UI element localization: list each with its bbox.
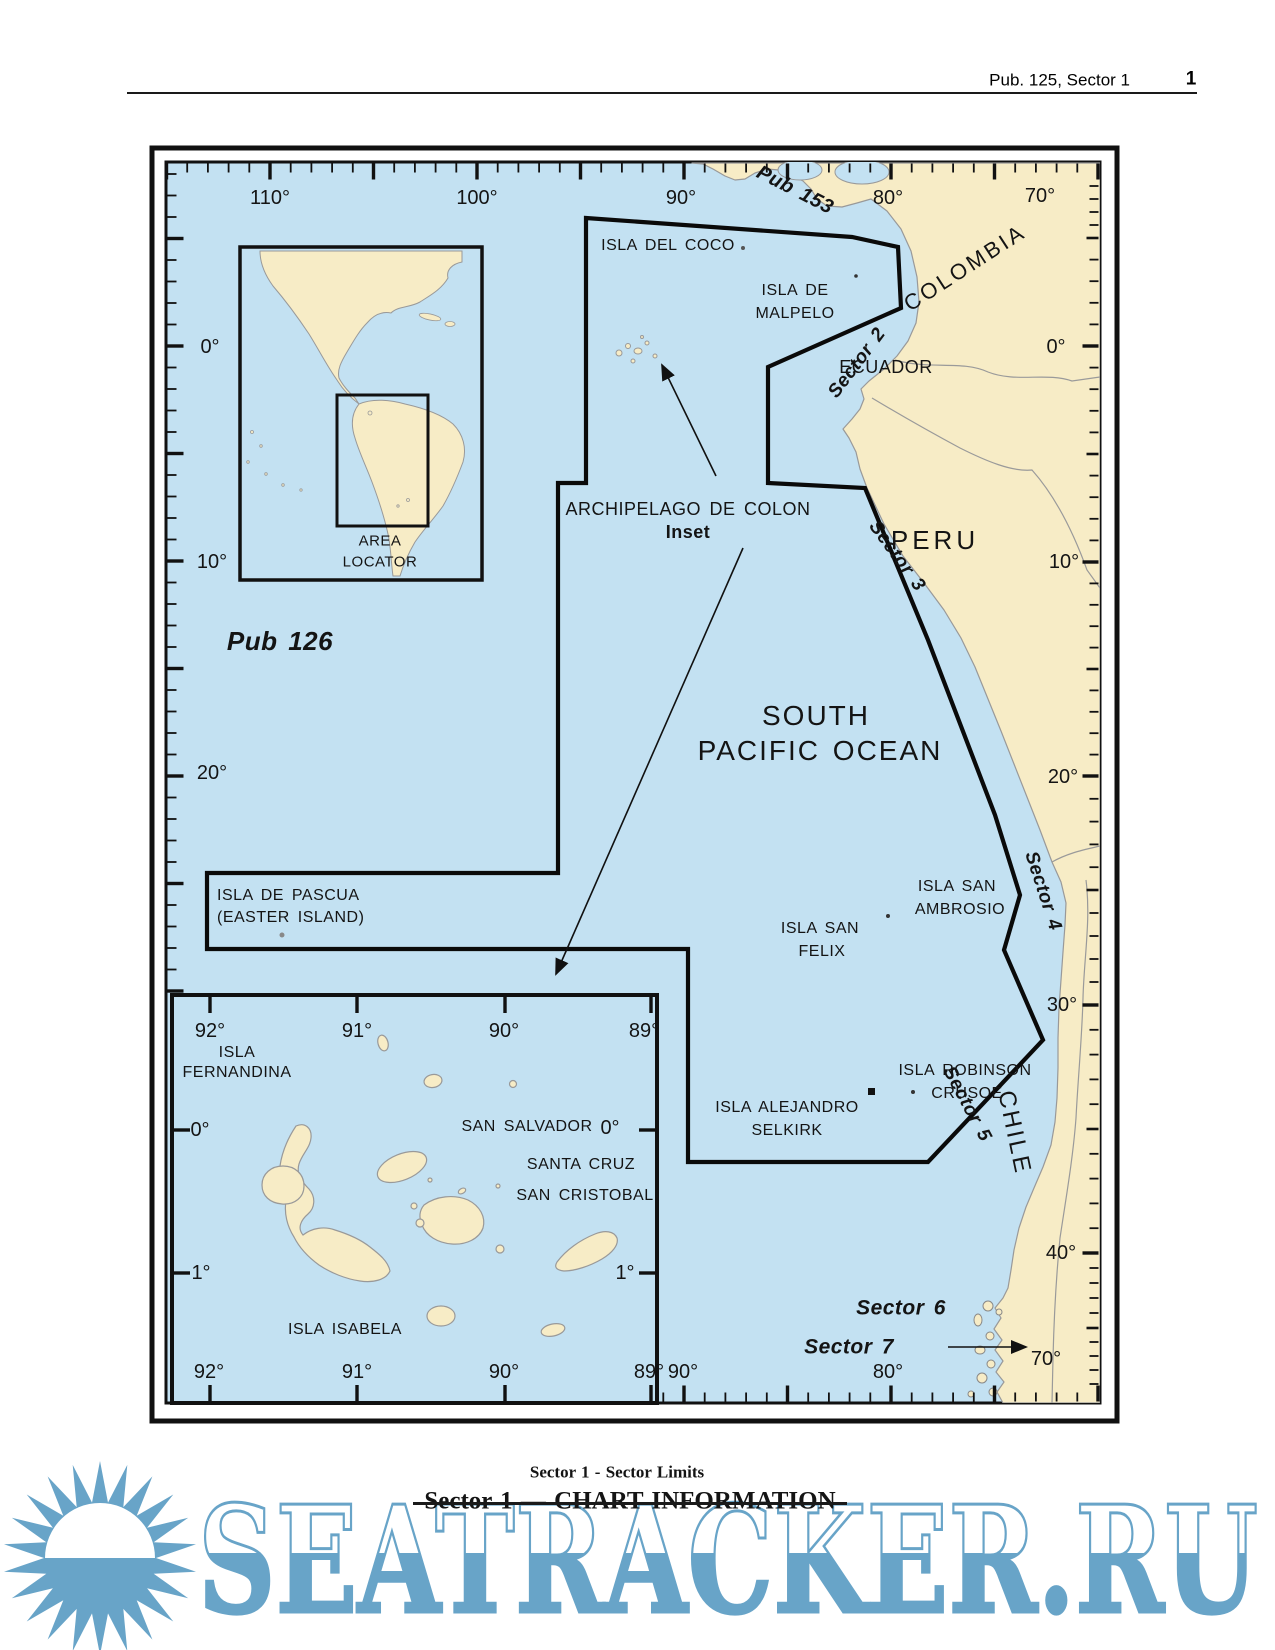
tick-label-10-left: 10° (197, 552, 227, 572)
isla-malpelo-label-1: ISLA DE (762, 283, 829, 299)
san-salvador-label: SAN SALVADOR (461, 1119, 592, 1135)
isla-malpelo-label-2: MALPELO (755, 306, 834, 322)
san-felix-label-2: FELIX (799, 944, 846, 960)
inset-tick-92-top: 92° (195, 1021, 225, 1041)
header-rule (127, 92, 1197, 94)
isla-malpelo-dot (854, 274, 858, 278)
inset-tick-91-top: 91° (342, 1021, 372, 1041)
inset-tick-1-right: 1° (615, 1263, 634, 1283)
isla-isabela-label: ISLA ISABELA (288, 1322, 402, 1338)
tick-label-100w: 100° (456, 188, 497, 208)
alejandro-selkirk-label-1: ISLA ALEJANDRO (715, 1100, 858, 1116)
tick-label-0-left: 0° (200, 337, 219, 357)
sector-7-label: Sector 7 (804, 1337, 894, 1358)
tick-label-20-left: 20° (197, 763, 227, 783)
inset-tick-0-right: 0° (600, 1118, 619, 1138)
inset-tick-89-bottom: 89° (634, 1362, 664, 1382)
isla-del-coco-label: ISLA DEL COCO (601, 238, 735, 254)
tick-label-30-right: 30° (1047, 995, 1077, 1015)
fernandina-label-2: FERNANDINA (182, 1065, 291, 1081)
page-header-title: Pub. 125, Sector 1 (989, 72, 1130, 89)
area-locator-label-1: AREA (359, 534, 402, 549)
san-ambrosio-label-2: AMBROSIO (915, 902, 1005, 918)
tick-label-10-right: 10° (1049, 552, 1079, 572)
inset-tick-90-bottom: 90° (489, 1362, 519, 1382)
figure-caption: Sector 1 - Sector Limits (530, 1464, 704, 1481)
tick-label-80w: 80° (873, 188, 903, 208)
caribbean-sea (835, 160, 889, 184)
inset-tick-89-top: 89° (629, 1021, 659, 1041)
fernandina-label-1: ISLA (219, 1045, 256, 1061)
isla-robinson-dot (911, 1090, 915, 1094)
sun-disc-top (45, 1503, 155, 1558)
inset-tick-92-bottom: 92° (194, 1362, 224, 1382)
sun-disc-bottom (45, 1558, 155, 1613)
ecuador-label: ECUADOR (839, 358, 933, 376)
document-page: Pub. 125, Sector 1 1 (0, 0, 1275, 1650)
area-locator-label-2: LOCATOR (343, 555, 418, 570)
tick-label-40-right: 40° (1046, 1243, 1076, 1263)
tick-label-80w-bottom: 80° (873, 1362, 903, 1382)
robinson-crusoe-label-1: ISLA ROBINSON (898, 1063, 1031, 1079)
peru-label: PERU (891, 527, 979, 553)
tick-label-90w-bottom: 90° (668, 1362, 698, 1382)
inset-tick-91-bottom: 91° (342, 1362, 372, 1382)
san-ambrosio-label-1: ISLA SAN (918, 879, 996, 895)
santa-cruz-label: SANTA CRUZ (527, 1157, 635, 1173)
tick-label-70w: 70° (1025, 186, 1055, 206)
san-felix-label-1: ISLA SAN (781, 921, 859, 937)
isla-del-coco-dot (741, 246, 745, 250)
watermark-sun-logo (4, 1461, 196, 1650)
archipelago-inset-label: Inset (666, 523, 711, 541)
easter-island-dot (280, 933, 285, 938)
tick-label-20-right: 20° (1048, 767, 1078, 787)
tick-label-90w: 90° (666, 188, 696, 208)
archipelago-label: ARCHIPELAGO DE COLON (565, 500, 810, 518)
section-heading: Sector 1 — CHART INFORMATION (424, 1489, 835, 1514)
heading-strike-line (413, 1502, 847, 1505)
isla-selkirk-marker (868, 1088, 875, 1095)
tick-label-0-right: 0° (1046, 337, 1065, 357)
tick-label-70w-bottom: 70° (1031, 1349, 1061, 1369)
inset-tick-90-top: 90° (489, 1021, 519, 1041)
easter-island-label-1: ISLA DE PASCUA (217, 888, 360, 904)
tick-label-110w: 110° (250, 188, 290, 208)
pub-126-label: Pub 126 (227, 628, 333, 654)
inset-tick-0-left: 0° (190, 1120, 209, 1140)
alejandro-selkirk-label-2: SELKIRK (751, 1123, 822, 1139)
ocean-name-line1: SOUTH (762, 702, 870, 730)
isla-san-ambrosio-dot (886, 914, 890, 918)
san-cristobal-label: SAN CRISTOBAL (516, 1188, 653, 1204)
sector-6-label: Sector 6 (856, 1298, 946, 1319)
robinson-crusoe-label-2: CRUSOE (931, 1086, 1002, 1102)
page-number: 1 (1186, 70, 1197, 89)
inset-tick-1-left: 1° (191, 1263, 210, 1283)
ocean-name-line2: PACIFIC OCEAN (698, 737, 943, 765)
easter-island-label-2: (EASTER ISLAND) (217, 910, 364, 926)
